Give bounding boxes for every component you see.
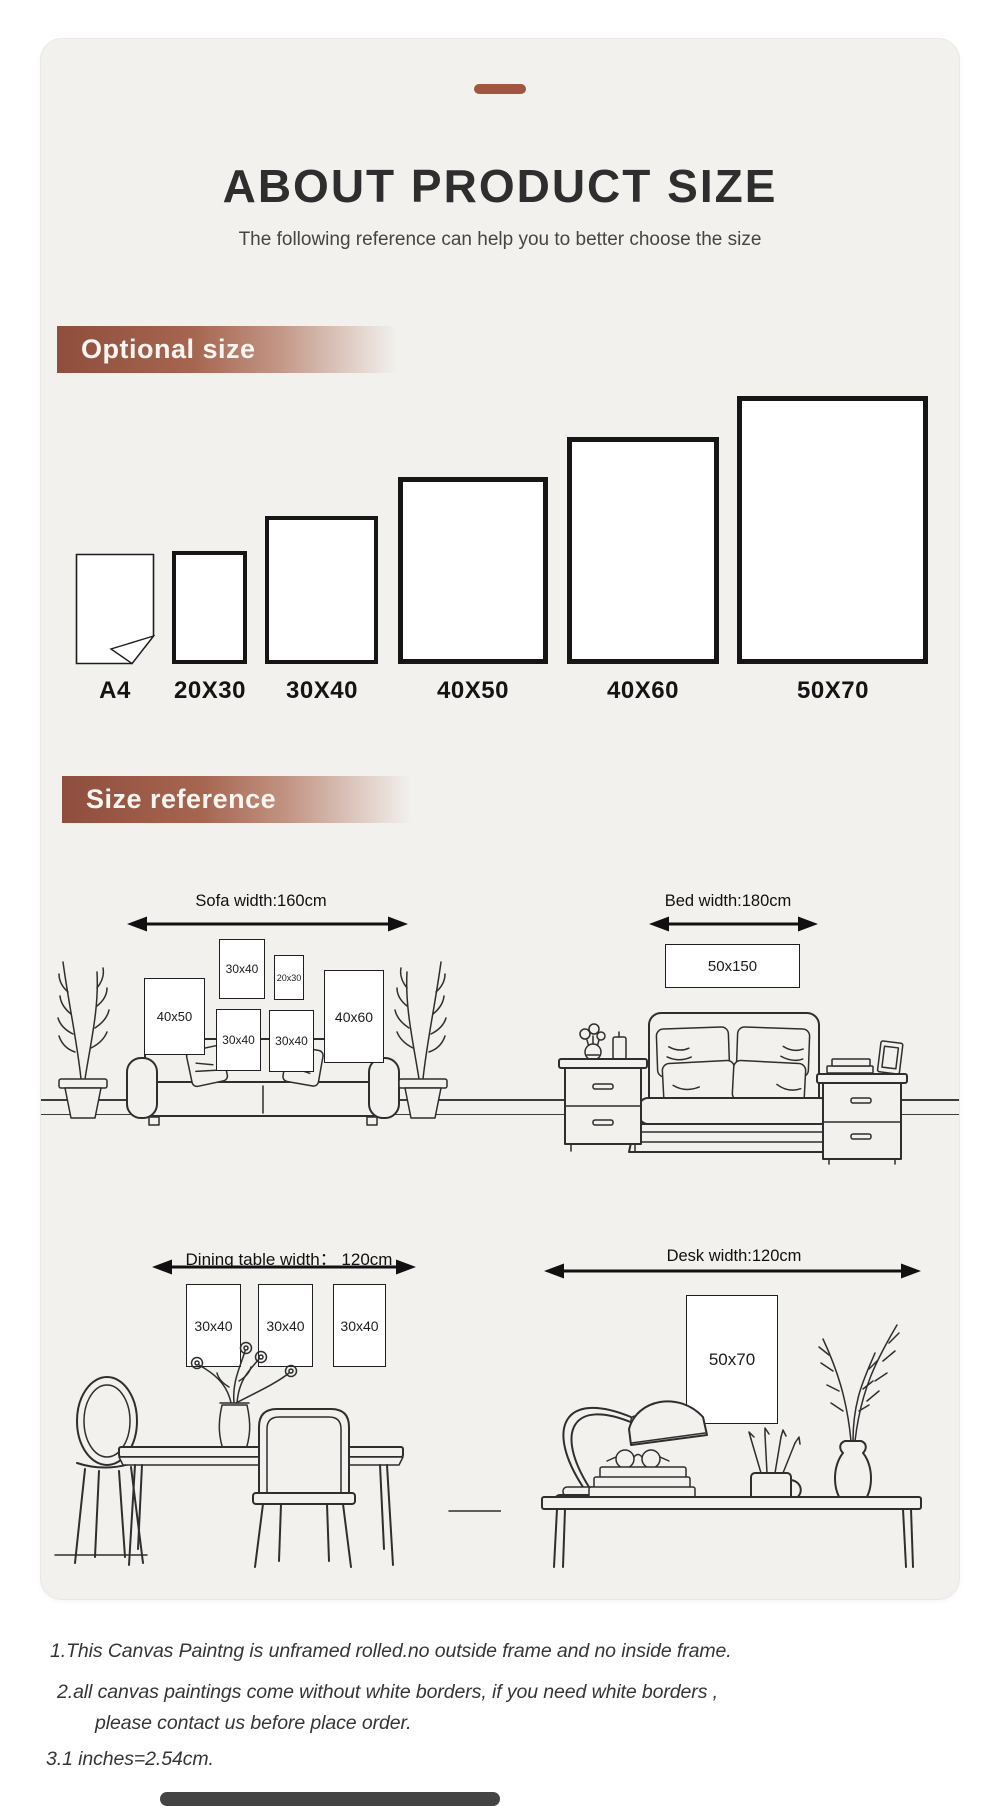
size-box-a4 <box>75 553 155 665</box>
optional-size-label: Optional size <box>81 334 256 364</box>
size-reference-label: Size reference <box>86 784 276 814</box>
footnote: 3.1 inches=2.54cm. <box>46 1748 214 1771</box>
books-icon <box>589 1450 695 1498</box>
bed-icon <box>629 1013 837 1152</box>
desk-icon <box>542 1497 921 1567</box>
size-box-30x40 <box>265 516 378 664</box>
size-label-40x60: 40X60 <box>578 677 708 705</box>
desk-scene-illustration <box>499 1231 960 1600</box>
size-label-40x50: 40X50 <box>408 677 538 705</box>
size-box-40x50 <box>398 477 548 664</box>
frame-size-label: 30x40 <box>226 962 259 976</box>
frame-size-label: 40x50 <box>157 1009 192 1024</box>
dining-scene-illustration <box>41 1231 501 1600</box>
product-size-page: ABOUT PRODUCT SIZE The following referen… <box>0 0 1000 1806</box>
branch-vase-icon <box>819 1325 899 1505</box>
chair-icon <box>253 1409 355 1567</box>
optional-size-header: Optional size <box>57 326 411 373</box>
dining-width-label: Dining table width： 120cm <box>186 1245 393 1270</box>
frame-size-label: 30x40 <box>275 1034 308 1048</box>
wall-frame: 50x150 <box>665 944 800 988</box>
plant-icon <box>58 962 109 1118</box>
wall-frame: 40x60 <box>324 970 384 1063</box>
size-label-50x70: 50X70 <box>768 677 898 705</box>
footnote: 1.This Canvas Paintng is unframed rolled… <box>50 1640 732 1663</box>
page-title: ABOUT PRODUCT SIZE <box>41 159 959 213</box>
frame-size-label: 50x150 <box>708 958 757 975</box>
size-label-20x30: 20X30 <box>145 677 275 705</box>
wall-frame: 20x30 <box>274 955 304 1000</box>
size-label-30x40: 30X40 <box>257 677 387 705</box>
nightstand-icon <box>817 1041 907 1164</box>
footnote: please contact us before place order. <box>95 1712 411 1735</box>
product-size-card: ABOUT PRODUCT SIZE The following referen… <box>40 38 960 1600</box>
frame-size-label: 30x40 <box>222 1033 255 1047</box>
chair-icon <box>75 1377 143 1563</box>
desk-width-label: Desk width:120cm <box>667 1247 802 1266</box>
width-arrow-icon <box>127 917 408 932</box>
plant-icon <box>395 962 447 1118</box>
width-arrow-icon <box>649 917 818 932</box>
bed-width-label: Bed width:180cm <box>665 892 792 911</box>
wall-frame: 30x40 <box>216 1009 261 1071</box>
wall-frame: 40x50 <box>144 978 205 1055</box>
bottom-divider-bar <box>160 1792 500 1806</box>
frame-size-label: 20x30 <box>277 973 302 983</box>
frame-size-label: 40x60 <box>335 1009 373 1025</box>
page-subtitle: The following reference can help you to … <box>41 229 959 251</box>
wall-frame: 30x40 <box>269 1010 314 1072</box>
a4-paper-icon <box>75 553 155 665</box>
nightstand-icon <box>559 1024 647 1151</box>
accent-dash <box>474 84 526 94</box>
pencil-mug-icon <box>749 1428 801 1506</box>
size-box-50x70 <box>737 396 928 664</box>
size-reference-header: Size reference <box>62 776 426 823</box>
size-box-40x60 <box>567 437 719 664</box>
footnote: 2.all canvas paintings come without whit… <box>57 1681 718 1704</box>
wall-frame: 30x40 <box>219 939 265 999</box>
sofa-width-label: Sofa width:160cm <box>195 892 326 911</box>
size-box-20x30 <box>172 551 247 664</box>
